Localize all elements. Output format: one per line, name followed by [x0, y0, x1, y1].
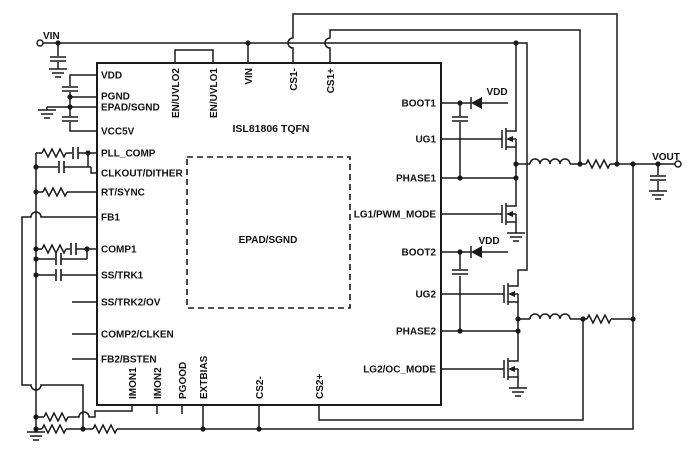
pin-en-uvlo1: EN/UVLO1 — [209, 68, 220, 118]
sgnd-ground — [38, 107, 56, 118]
pin-pgood: PGOOD — [178, 362, 189, 399]
pin-pll-comp: PLL_COMP — [101, 149, 156, 160]
vin-net-label: VIN — [43, 31, 60, 42]
boot2-diode — [471, 246, 482, 258]
phase2-inductor — [530, 314, 570, 319]
pin-cs2-plus: CS2+ — [315, 374, 326, 399]
pin-ug1: UG1 — [415, 135, 436, 146]
output-cap-ground — [649, 188, 667, 199]
pin-boot2: BOOT2 — [402, 248, 437, 259]
chip-title: ISL81806 TQFN — [232, 123, 309, 135]
vdd1-net-label: VDD — [486, 87, 507, 98]
inductors — [530, 159, 570, 319]
boot1-diode — [471, 97, 482, 109]
pin-epad-sgnd: EPAD/SGND — [101, 103, 160, 114]
phase1-inductor — [530, 159, 570, 164]
lowfet2-ground — [509, 385, 527, 396]
pin-pgnd: PGND — [101, 92, 130, 103]
typical-application-schematic: ISL81806 TQFN EPAD/SGND VDD PGND EPAD/SG… — [0, 0, 700, 454]
pin-rt-sync: RT/SYNC — [101, 188, 145, 199]
pin-phase2: PHASE2 — [396, 327, 436, 338]
high-side-mosfet-2 — [504, 278, 518, 310]
pin-imon1: IMON1 — [128, 367, 139, 399]
pin-clkout-dither: CLKOUT/DITHER — [101, 169, 183, 180]
pin-vin: VIN — [244, 68, 255, 85]
pin-vdd: VDD — [101, 71, 122, 82]
pin-cs2-minus: CS2- — [255, 376, 266, 399]
lowfet1-ground — [507, 230, 525, 241]
fb-divider-upper-resistor — [93, 425, 117, 433]
pin-lg1-pwm-mode: LG1/PWM_MODE — [354, 210, 437, 221]
vout-net-label: VOUT — [652, 152, 680, 163]
pin-comp2-clken: COMP2/CLKEN — [101, 330, 174, 341]
pin-comp1: COMP1 — [101, 245, 137, 256]
pin-vcc5v: VCC5V — [101, 127, 135, 138]
pin-ug2: UG2 — [415, 290, 436, 301]
high-side-mosfet-1 — [502, 123, 516, 155]
pin-boot1: BOOT1 — [402, 99, 437, 110]
imon1-resistor — [44, 413, 68, 421]
pin-imon2: IMON2 — [153, 367, 164, 399]
low-side-mosfet-2 — [504, 353, 518, 385]
pin-extbias: EXTBIAS — [199, 355, 210, 399]
schematic-page: ISL81806 TQFN EPAD/SGND VDD PGND EPAD/SG… — [0, 0, 700, 454]
pin-phase1: PHASE1 — [396, 174, 436, 185]
pin-lg2-oc-mode: LG2/OC_MODE — [363, 365, 436, 376]
low-side-mosfet-1 — [502, 198, 516, 230]
pin-cs1-minus: CS1- — [289, 68, 300, 91]
comp1-resistor — [42, 245, 66, 253]
cs2-sense-resistor — [587, 315, 611, 323]
input-cap-ground — [49, 66, 67, 77]
fb-divider-lower-resistor — [42, 425, 66, 433]
rt-sync-resistor — [43, 188, 67, 196]
pin-cs1-plus: CS1+ — [326, 68, 337, 93]
pin-fb2-bsten: FB2/BSTEN — [101, 355, 157, 366]
pin-ss-trk2-ov: SS/TRK2/OV — [101, 298, 161, 309]
pin-ss-trk1: SS/TRK1 — [101, 271, 144, 282]
cs1-sense-resistor — [586, 160, 610, 168]
pin-en-uvlo2: EN/UVLO2 — [171, 68, 182, 118]
vdd2-net-label: VDD — [478, 236, 499, 247]
pin-fb1: FB1 — [101, 213, 120, 224]
epad-label: EPAD/SGND — [239, 235, 298, 246]
pll-comp-resistor — [42, 149, 66, 157]
